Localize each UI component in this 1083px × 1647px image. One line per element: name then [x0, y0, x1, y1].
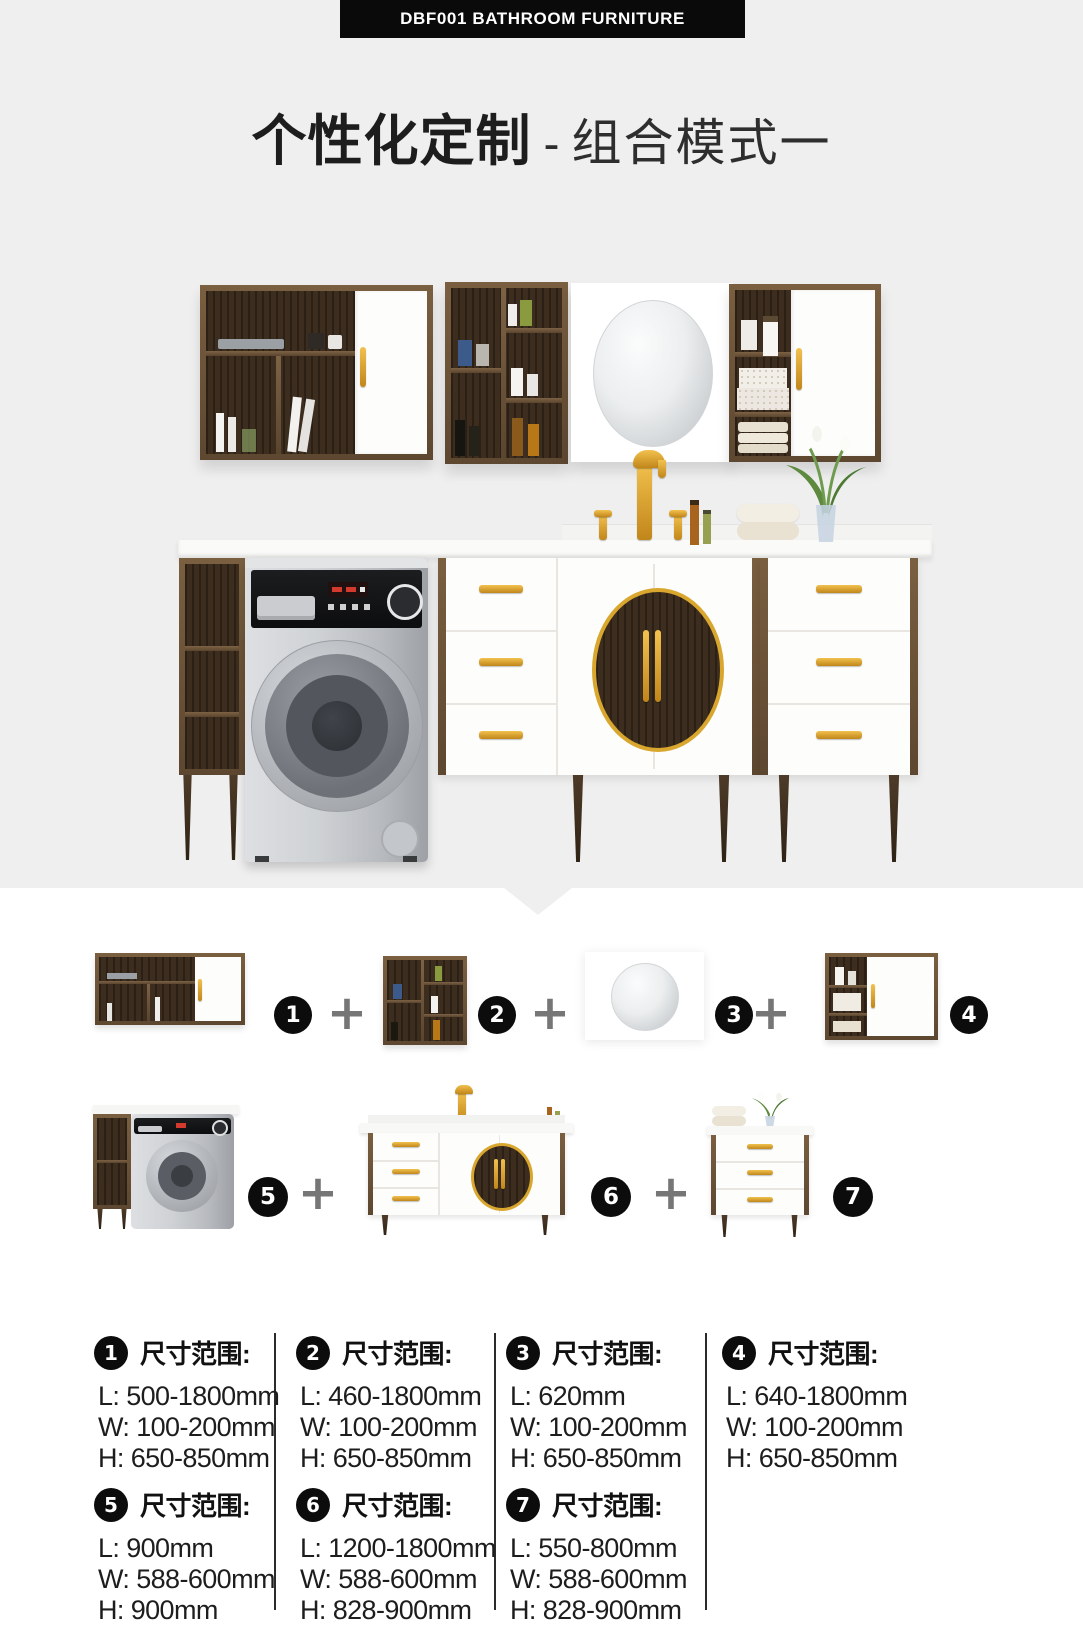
vanity-side-stile [368, 1133, 373, 1215]
spec-width: W: 588-600mm [98, 1564, 274, 1595]
plus-icon: + [751, 993, 791, 1033]
perfume-bottle-item [763, 316, 778, 356]
towel-stack [712, 1116, 746, 1126]
mini-faucet-spout [455, 1085, 473, 1094]
spec-label: 尺寸范围: [768, 1334, 878, 1371]
wall-open-shelf-unit [445, 282, 568, 464]
lattice-box-item [739, 368, 787, 388]
spec-badge-5: 5 [94, 1488, 128, 1522]
vanity-cabinet [438, 558, 760, 775]
shelf-divider [276, 356, 281, 454]
component-badge-7: 7 [833, 1177, 873, 1217]
detergent-drawer [138, 1126, 162, 1132]
mini-vanity-body [368, 1133, 565, 1215]
badge-number: 1 [104, 1341, 118, 1365]
component-thumb-4 [825, 953, 938, 1040]
badge-number: 7 [845, 1184, 861, 1210]
spec-label: 尺寸范围: [342, 1486, 452, 1523]
spec-badge-2: 2 [296, 1336, 330, 1370]
item-speck [107, 973, 137, 979]
badge-number: 2 [489, 1003, 504, 1028]
drawer-divider [768, 630, 910, 632]
bottle-item [508, 304, 517, 326]
shelf [735, 412, 791, 417]
item-speck [833, 1021, 861, 1032]
drawer-divider [716, 1161, 804, 1163]
plus-glyph: + [751, 985, 791, 1041]
bottle-item [455, 420, 465, 456]
spec-heading: 2 尺寸范围: [296, 1334, 476, 1371]
washer-foot [403, 856, 417, 862]
spec-column-divider [494, 1333, 496, 1610]
display-segment [360, 587, 365, 592]
item-speck [107, 1003, 112, 1021]
vanity-leg [716, 775, 732, 862]
vanity-side-stile [560, 1133, 565, 1215]
drawer-cabinet [760, 558, 918, 775]
drawer-door-divider [438, 1133, 440, 1215]
drawer-divider [446, 703, 556, 705]
badge-number: 6 [603, 1184, 619, 1210]
spec-dimensions: L: 500-1800mm W: 100-200mm H: 650-850mm [98, 1381, 274, 1474]
box-item [458, 340, 472, 366]
shelf [424, 1014, 463, 1017]
drawer-handle-gold [479, 585, 523, 593]
badge-number: 4 [732, 1341, 746, 1365]
drawer-handle-gold [747, 1197, 773, 1202]
drawer-handle-gold [392, 1196, 420, 1201]
badge-number: 2 [306, 1341, 320, 1365]
cabinet-leg [720, 1215, 729, 1237]
washer-knob [387, 584, 423, 620]
vanity-side-stile [752, 558, 760, 775]
cabinet-leg [227, 775, 240, 860]
hero-product-image [0, 0, 1083, 888]
washer-top-strip [245, 558, 428, 568]
mini-drum [146, 1140, 218, 1212]
jar-item [328, 335, 342, 349]
spec-item-6: 6 尺寸范围: L: 1200-1800mm W: 588-600mm H: 8… [296, 1486, 476, 1626]
mini-washing-machine [131, 1114, 234, 1229]
shelf-divider [147, 984, 150, 1021]
spec-label: 尺寸范围: [552, 1486, 662, 1523]
cabinet-interior [185, 564, 239, 769]
mini-plant-decor [747, 1090, 793, 1128]
shelf [829, 1013, 867, 1016]
cabinet-leg [886, 775, 902, 862]
tray-item [218, 339, 284, 349]
door-handle-gold [655, 630, 661, 702]
spec-length: L: 900mm [98, 1533, 274, 1564]
spec-width: W: 100-200mm [300, 1412, 476, 1443]
shelf [185, 712, 239, 717]
shelf [185, 646, 239, 651]
drawer-door-divider [556, 558, 558, 775]
spec-width: W: 100-200mm [98, 1412, 274, 1443]
shelf-divider [501, 288, 506, 458]
spec-badge-7: 7 [506, 1488, 540, 1522]
spec-label: 尺寸范围: [140, 1334, 250, 1371]
drawer-divider [716, 1188, 804, 1190]
spec-item-7: 7 尺寸范围: L: 550-800mm W: 588-600mm H: 828… [506, 1486, 686, 1626]
spec-label: 尺寸范围: [552, 1334, 662, 1371]
display-segment [332, 587, 342, 592]
shelf [97, 1160, 127, 1163]
faucet-handle [599, 514, 607, 540]
washer-filter-door [381, 820, 419, 858]
cabinet-leg [181, 775, 194, 860]
door-handle-gold [643, 630, 649, 702]
washer-drum-outer [251, 640, 423, 812]
bottle-item [511, 368, 523, 396]
faucet [637, 462, 652, 540]
plus-glyph: + [298, 1165, 338, 1221]
spec-dimensions: L: 550-800mm W: 588-600mm H: 828-900mm [510, 1533, 686, 1626]
spec-dimensions: L: 1200-1800mm W: 588-600mm H: 828-900mm [300, 1533, 476, 1626]
mini-washer-panel [134, 1118, 231, 1134]
spec-length: L: 620mm [510, 1381, 686, 1412]
spec-item-1: 1 尺寸范围: L: 500-1800mm W: 100-200mm H: 65… [94, 1334, 274, 1474]
washer-display [328, 582, 368, 597]
spec-heading: 1 尺寸范围: [94, 1334, 274, 1371]
badge-number: 5 [260, 1184, 276, 1210]
shelf [829, 985, 867, 988]
cabinet-side-stile [910, 558, 918, 775]
display-segment [176, 1123, 186, 1128]
spec-height: H: 650-850mm [510, 1443, 686, 1474]
plus-glyph: + [530, 985, 570, 1041]
spec-item-4: 4 尺寸范围: L: 640-1800mm W: 100-200mm H: 65… [722, 1334, 902, 1474]
washer-control-panel [251, 570, 422, 628]
cabinet-door [867, 957, 934, 1036]
spec-dimensions: L: 620mm W: 100-200mm H: 650-850mm [510, 1381, 686, 1474]
item-speck [833, 993, 861, 1011]
spec-width: W: 588-600mm [510, 1564, 686, 1595]
spec-length: L: 640-1800mm [726, 1381, 902, 1412]
drawer-handle-gold [816, 731, 862, 739]
vanity-leg [570, 775, 586, 862]
plus-icon: + [298, 1173, 338, 1213]
faucet-handle-top [594, 510, 612, 517]
drawer-handle-gold [479, 731, 523, 739]
side-open-cabinet [179, 558, 245, 775]
component-thumb-2 [383, 956, 467, 1045]
spec-length: L: 500-1800mm [98, 1381, 274, 1412]
drawer-divider [446, 630, 556, 632]
item-speck [835, 967, 844, 985]
faucet-handle-top [669, 510, 687, 517]
drawer-divider [373, 1187, 438, 1189]
mini-drawer-body [711, 1135, 809, 1215]
bottle-decor [690, 500, 699, 545]
shelf [506, 328, 562, 333]
spec-item-3: 3 尺寸范围: L: 620mm W: 100-200mm H: 650-850… [506, 1334, 686, 1474]
item-speck [391, 1022, 398, 1040]
door-handle-gold [871, 984, 875, 1008]
display-segment [346, 587, 356, 592]
door-handle-gold [501, 1159, 505, 1189]
drawer-handle-gold [747, 1144, 773, 1149]
cabinet-side-stile [711, 1135, 716, 1215]
washer-button-row [328, 604, 372, 610]
spec-badge-1: 1 [94, 1336, 128, 1370]
spec-badge-3: 3 [506, 1336, 540, 1370]
spec-height: H: 828-900mm [510, 1595, 686, 1626]
bottle-item [528, 424, 539, 456]
spec-badge-6: 6 [296, 1488, 330, 1522]
detergent-drawer [257, 596, 315, 620]
component-badge-5: 5 [248, 1177, 288, 1217]
component-thumb-1 [95, 953, 245, 1025]
drawer-handle-gold [816, 658, 862, 666]
faucet-handle [674, 514, 682, 540]
component-badge-4: 4 [950, 996, 988, 1034]
badge-number: 5 [104, 1493, 118, 1517]
badge-number: 6 [306, 1493, 320, 1517]
item-speck [155, 997, 160, 1021]
spec-heading: 5 尺寸范围: [94, 1486, 274, 1523]
spec-item-5: 5 尺寸范围: L: 900mm W: 588-600mm H: 900mm [94, 1486, 274, 1626]
drawer-divider [373, 1160, 438, 1162]
badge-number: 3 [516, 1341, 530, 1365]
box-item [741, 320, 757, 350]
cup-item [242, 429, 256, 452]
spec-label: 尺寸范围: [140, 1486, 250, 1523]
mini-backsplash [368, 1115, 565, 1123]
bottle-decor [703, 510, 711, 544]
spec-badge-4: 4 [722, 1336, 756, 1370]
drawer-handle-gold [816, 585, 862, 593]
drawer-handle-gold [392, 1169, 420, 1174]
spec-width: W: 100-200mm [510, 1412, 686, 1443]
bottle-item [512, 418, 523, 456]
plus-icon: + [530, 993, 570, 1033]
washing-machine [245, 558, 428, 862]
spec-length: L: 460-1800mm [300, 1381, 476, 1412]
mini-countertop [360, 1123, 573, 1133]
spec-item-2: 2 尺寸范围: L: 460-1800mm W: 100-200mm H: 65… [296, 1334, 476, 1474]
shelf [387, 1000, 421, 1003]
lattice-box-item [737, 388, 789, 410]
badge-number: 7 [516, 1493, 530, 1517]
plus-icon: + [651, 1173, 691, 1213]
component-thumb-3 [585, 952, 704, 1040]
cabinet-side-stile [760, 558, 768, 775]
drawer-handle-gold [747, 1170, 773, 1175]
component-thumb-6 [360, 1085, 573, 1235]
badge-number: 4 [961, 1003, 976, 1028]
spec-width: W: 100-200mm [726, 1412, 902, 1443]
cabinet-leg [790, 1215, 799, 1237]
bottle-item [527, 374, 538, 396]
mirror-panel [571, 283, 733, 462]
badge-number: 1 [285, 1003, 300, 1028]
bottle-item [520, 300, 532, 326]
spec-heading: 4 尺寸范围: [722, 1334, 902, 1371]
wall-cabinet-1 [200, 285, 433, 460]
mini-side-cabinet [93, 1114, 131, 1209]
component-badge-3: 3 [715, 996, 753, 1034]
item-speck [431, 996, 438, 1013]
plus-glyph: + [327, 985, 367, 1041]
bottle-item [228, 417, 236, 452]
shelf-divider [421, 960, 424, 1041]
bottle-item [476, 344, 489, 366]
plus-glyph: + [651, 1165, 691, 1221]
cabinet-leg [120, 1209, 128, 1229]
door-handle-gold [494, 1159, 498, 1189]
door-handle-gold [360, 347, 366, 387]
round-mirror [611, 963, 679, 1031]
spec-dimensions: L: 900mm W: 588-600mm H: 900mm [98, 1533, 274, 1626]
mini-drum-hub [171, 1165, 193, 1187]
cabinet-leg [96, 1209, 104, 1229]
door-handle-gold [796, 348, 802, 390]
component-badge-6: 6 [591, 1177, 631, 1217]
spec-width: W: 588-600mm [300, 1564, 476, 1595]
cabinet-side-stile [804, 1135, 809, 1215]
spec-length: L: 1200-1800mm [300, 1533, 476, 1564]
vanity-leg [380, 1215, 390, 1235]
spec-label: 尺寸范围: [342, 1334, 452, 1371]
component-thumb-7 [707, 1090, 813, 1240]
shelf [424, 982, 463, 985]
component-badge-1: 1 [274, 996, 312, 1034]
washer-knob [212, 1120, 228, 1136]
drawer-handle-gold [479, 658, 523, 666]
drawer-divider [768, 703, 910, 705]
spec-dimensions: L: 640-1800mm W: 100-200mm H: 650-850mm [726, 1381, 902, 1474]
mini-countertop [93, 1105, 239, 1114]
mini-countertop [707, 1126, 813, 1135]
spec-height: H: 650-850mm [300, 1443, 476, 1474]
bottle-item [216, 413, 224, 452]
oval-mirror [593, 300, 713, 447]
towel-stack [712, 1106, 746, 1116]
shelf [506, 398, 562, 403]
door-handle-gold [198, 979, 202, 1001]
vanity-leg [540, 1215, 550, 1235]
spec-column-divider [705, 1333, 707, 1610]
section-arrow-triangle [504, 888, 572, 915]
component-badge-2: 2 [478, 996, 516, 1034]
spec-dimensions: L: 460-1800mm W: 100-200mm H: 650-850mm [300, 1381, 476, 1474]
cabinet-interior [451, 288, 562, 458]
item-speck [433, 1020, 440, 1040]
spec-heading: 3 尺寸范围: [506, 1334, 686, 1371]
page: DBF001 BATHROOM FURNITURE 个性化定制-组合模式一 [0, 0, 1083, 1647]
item-speck [393, 984, 402, 999]
spec-height: H: 828-900mm [300, 1595, 476, 1626]
spec-height: H: 650-850mm [98, 1443, 274, 1474]
bottle-item [469, 426, 479, 456]
drawer-handle-gold [392, 1142, 420, 1147]
spec-heading: 6 尺寸范围: [296, 1486, 476, 1523]
spec-height: H: 650-850mm [726, 1443, 902, 1474]
jar-item [308, 333, 324, 349]
faucet-spout-tip [658, 460, 666, 478]
spec-height: H: 900mm [98, 1595, 274, 1626]
item-speck [848, 971, 856, 985]
shelf [451, 368, 501, 373]
item-speck [435, 966, 442, 981]
vanity-side-stile [438, 558, 446, 775]
spec-heading: 7 尺寸范围: [506, 1486, 686, 1523]
badge-number: 3 [726, 1003, 741, 1028]
component-thumb-5 [93, 1105, 239, 1232]
spec-length: L: 550-800mm [510, 1533, 686, 1564]
washer-drum-hub [312, 701, 362, 751]
plant-decor [778, 425, 873, 543]
plus-icon: + [327, 993, 367, 1033]
washer-foot [255, 856, 269, 862]
cabinet-leg [776, 775, 792, 862]
